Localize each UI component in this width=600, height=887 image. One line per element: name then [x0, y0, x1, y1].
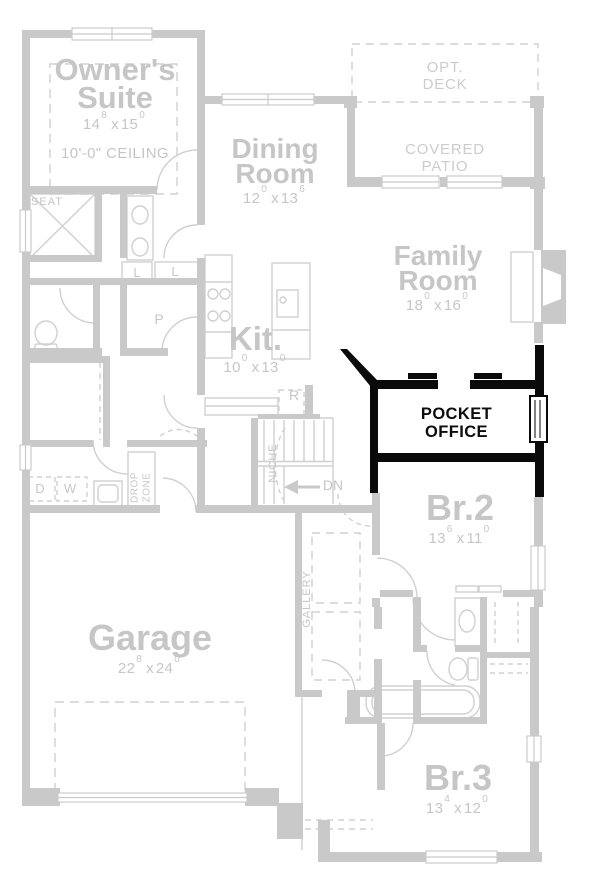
br3-side-window	[527, 736, 541, 762]
dim-feet: 13	[261, 359, 278, 376]
bath2-toilet	[449, 658, 478, 680]
powder-door-arc	[60, 288, 95, 323]
br2-window	[531, 546, 545, 590]
dim-inches: 6	[447, 524, 453, 535]
pocket-office-window	[530, 396, 547, 442]
laundry-side-window	[20, 445, 31, 470]
room-dims: 180x160	[378, 296, 498, 314]
kitchen-counter	[205, 398, 278, 415]
dim-separator: x	[146, 660, 154, 677]
dim-inches: 0	[174, 654, 180, 665]
family-window-right	[447, 176, 502, 188]
dining-room-label: Dining Room 120x136	[210, 136, 340, 207]
niche-label: NICHE	[267, 433, 279, 493]
room-dims: 120x136	[210, 189, 340, 207]
br2-label: Br.2 136x110	[400, 490, 520, 547]
dim-inches: 0	[482, 794, 488, 805]
dim-feet: 13	[428, 530, 445, 547]
fireplace	[511, 250, 566, 324]
dim-inches: 0	[242, 353, 248, 364]
gallery-door-arc	[322, 660, 355, 693]
covered-patio-label: COVERED PATIO	[395, 142, 495, 175]
family-room-label: Family Room 180x160	[378, 243, 498, 314]
dryer-label: D	[29, 481, 51, 496]
dim-feet: 12	[243, 190, 260, 207]
owners-suite-label: Owner's Suite 148x150	[30, 56, 200, 133]
dim-inches: 0	[139, 110, 145, 121]
dim-inches: 0	[424, 291, 430, 302]
garage-label: Garage 228x240	[70, 620, 230, 677]
dim-feet: 15	[121, 116, 138, 133]
gallery-ceiling-outline-2	[312, 612, 360, 680]
dim-separator: x	[457, 530, 465, 547]
room-name: Kit.	[198, 322, 313, 355]
closet-shelf-dashes	[490, 602, 528, 673]
dim-feet: 24	[156, 660, 173, 677]
fridge-label: R	[282, 387, 306, 403]
stair-down-arrow	[284, 480, 320, 494]
room-dims: 136x110	[400, 529, 520, 547]
br3-label: Br.3 134x120	[398, 760, 518, 817]
floorplan: Owner's Suite 148x150 10'-0" CEILING Din…	[0, 0, 600, 887]
dim-separator: x	[252, 359, 260, 376]
dim-feet: 12	[464, 800, 481, 817]
dim-separator: x	[271, 190, 279, 207]
owners-suite-window	[72, 28, 152, 40]
garage-dashed-outline	[55, 702, 245, 797]
garage-door-opening	[58, 793, 247, 802]
room-name: Br.3	[398, 760, 518, 796]
dim-feet: 10	[223, 359, 240, 376]
dim-inches: 0	[462, 291, 468, 302]
stairs-down-label: DN	[318, 477, 348, 493]
owners-bath-door-arc	[164, 225, 197, 258]
room-name: Garage	[70, 620, 230, 656]
dim-inches: 8	[136, 654, 142, 665]
dim-feet: 13	[281, 190, 298, 207]
room-name: Dining Room	[210, 136, 340, 186]
ceiling-height-note: 10'-0" CEILING	[30, 145, 200, 162]
room-dims: 134x120	[398, 799, 518, 817]
room-dims: 148x150	[30, 115, 200, 133]
room-name: Owner's Suite	[30, 56, 200, 112]
dim-feet: 13	[426, 800, 443, 817]
linen-label-a: L	[126, 265, 148, 280]
gallery-ceiling-outline-1	[312, 533, 360, 603]
linen-label-b: L	[164, 264, 186, 279]
vanity-double-sink	[127, 196, 153, 260]
br3-bottom-window	[426, 851, 497, 863]
dim-separator: x	[454, 800, 462, 817]
seat-label: SEAT	[26, 196, 68, 208]
dim-inches: 0	[261, 184, 267, 195]
garage-entry-door-arc	[163, 478, 196, 512]
opt-deck-label: OPT. DECK	[414, 60, 476, 93]
pantry-label: P	[147, 311, 171, 327]
br2-closet-door-headers	[456, 586, 501, 592]
drop-zone-label: DROP ZONE	[130, 470, 153, 506]
dim-inches: 0	[484, 524, 490, 535]
bath2-vanity	[455, 598, 481, 646]
dim-feet: 11	[466, 530, 482, 547]
family-window-left	[382, 176, 439, 188]
bathtub	[366, 686, 480, 718]
room-dims: 100x130	[198, 358, 313, 376]
dim-inches: 6	[299, 184, 305, 195]
dim-feet: 18	[406, 297, 423, 314]
kitchen-label: Kit. 100x130	[198, 322, 313, 376]
toilet-powder	[35, 321, 57, 352]
dim-separator: x	[434, 297, 442, 314]
bath-side-window	[20, 210, 31, 252]
hall-kitchen-door-arc	[164, 395, 197, 428]
dining-window	[222, 94, 314, 105]
bath2-wc-door-arc	[427, 651, 455, 685]
dim-inches: 0	[280, 353, 286, 364]
room-name: Family Room	[378, 243, 498, 293]
dim-inches: 8	[101, 110, 107, 121]
porch-dashed-lines	[305, 820, 373, 829]
gallery-label: GALLERY	[301, 564, 313, 634]
washer-label: W	[59, 481, 81, 496]
room-name: Br.2	[400, 490, 520, 526]
dim-feet: 14	[83, 116, 100, 133]
dim-inches: 4	[444, 794, 450, 805]
cased-opening-dashed-arc	[160, 430, 197, 437]
room-dims: 228x240	[70, 659, 230, 677]
dim-feet: 22	[118, 660, 135, 677]
dim-feet: 16	[444, 297, 461, 314]
pocket-office-label: POCKET OFFICE	[394, 406, 519, 442]
dim-separator: x	[111, 116, 119, 133]
